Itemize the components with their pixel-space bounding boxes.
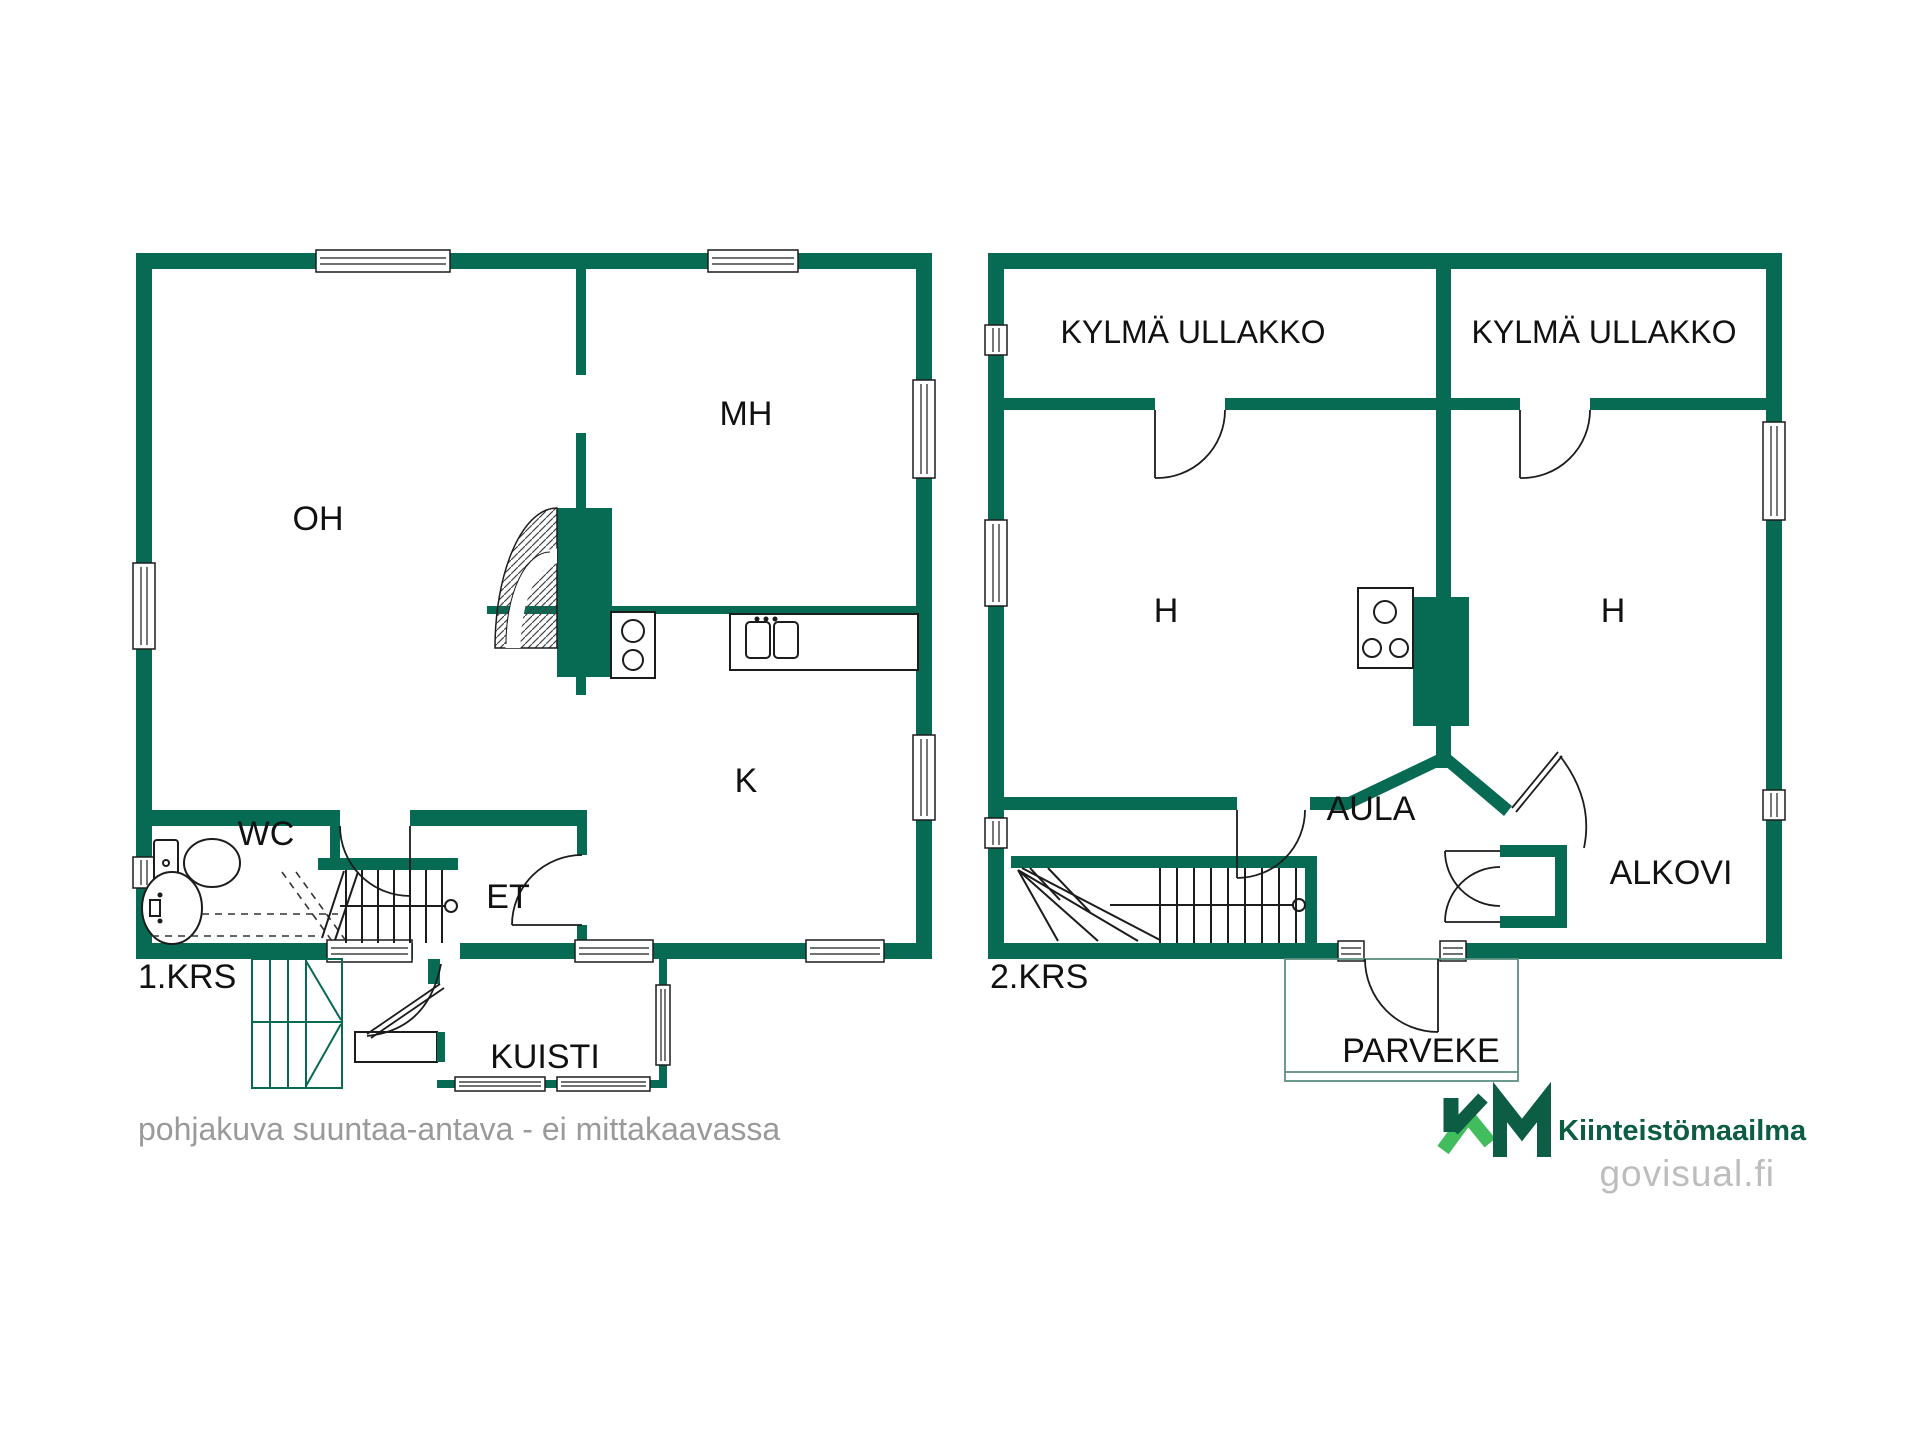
floor2-plan: KYLMÄ ULLAKKO KYLMÄ ULLAKKO H H AULA ALK… <box>985 253 1785 1081</box>
window <box>708 250 798 272</box>
stove-upstairs <box>1358 588 1413 668</box>
closet-door-lower <box>1445 867 1500 922</box>
floor-plan-drawing: OH MH K WC ET KUISTI 1.KRS <box>0 0 1920 1440</box>
window <box>557 1077 650 1091</box>
window <box>985 818 1007 848</box>
room-label-parveke: PARVEKE <box>1342 1032 1499 1070</box>
wc-sink <box>142 872 202 944</box>
window <box>913 735 935 820</box>
window <box>1763 790 1785 820</box>
window <box>985 520 1007 606</box>
floor-plan-page: OH MH K WC ET KUISTI 1.KRS <box>0 0 1920 1440</box>
floor2-doors <box>1155 410 1590 1032</box>
brand-site: govisual.fi <box>1599 1153 1775 1194</box>
parveke-door <box>1365 959 1438 1032</box>
kiinteistomaailma-logo: Kiinteistömaailma govisual.fi <box>1443 1098 1807 1194</box>
room-label-attic-left: KYLMÄ ULLAKKO <box>1061 314 1326 350</box>
window <box>806 940 884 962</box>
kitchen-sink <box>730 614 918 670</box>
attic-left-door <box>1155 410 1225 478</box>
room-label-mh: MH <box>720 395 773 433</box>
room-label-h-left: H <box>1154 592 1179 630</box>
disclaimer-text: pohjakuva suuntaa-antava - ei mittakaava… <box>138 1111 780 1147</box>
window <box>1763 422 1785 520</box>
fireplace <box>495 508 557 648</box>
brand-name: Kiinteistömaailma <box>1558 1115 1807 1147</box>
room-label-k: K <box>735 762 758 800</box>
window <box>455 1077 545 1091</box>
window <box>133 563 155 649</box>
alkovi-door <box>1512 752 1586 848</box>
window <box>656 985 670 1065</box>
room-label-kuisti: KUISTI <box>490 1038 600 1076</box>
room-label-attic-right: KYLMÄ ULLAKKO <box>1472 314 1737 350</box>
room-label-aula: AULA <box>1327 790 1416 828</box>
stairs-floor2 <box>1018 868 1305 943</box>
floor1-doors <box>340 826 582 1038</box>
window <box>985 325 1007 355</box>
room-label-h-right: H <box>1601 592 1626 630</box>
floor2-label: 2.KRS <box>990 958 1088 996</box>
floor1-label: 1.KRS <box>138 958 236 996</box>
stairs-floor1 <box>322 870 457 943</box>
room-label-et: ET <box>486 878 529 916</box>
window <box>575 940 653 962</box>
stove <box>611 612 655 678</box>
room-label-wc: WC <box>238 815 295 853</box>
closet-door-upper <box>1445 851 1500 906</box>
room-label-oh: OH <box>293 500 344 538</box>
km-logo-icon <box>1443 1098 1544 1157</box>
attic-right-door <box>1520 410 1590 478</box>
room-label-alkovi: ALKOVI <box>1610 854 1733 892</box>
window <box>913 380 935 478</box>
floor1-plan: OH MH K WC ET KUISTI 1.KRS <box>133 250 935 1091</box>
window <box>316 250 450 272</box>
exterior-stairs <box>252 959 342 1088</box>
window <box>1440 941 1466 961</box>
window <box>1338 941 1364 961</box>
